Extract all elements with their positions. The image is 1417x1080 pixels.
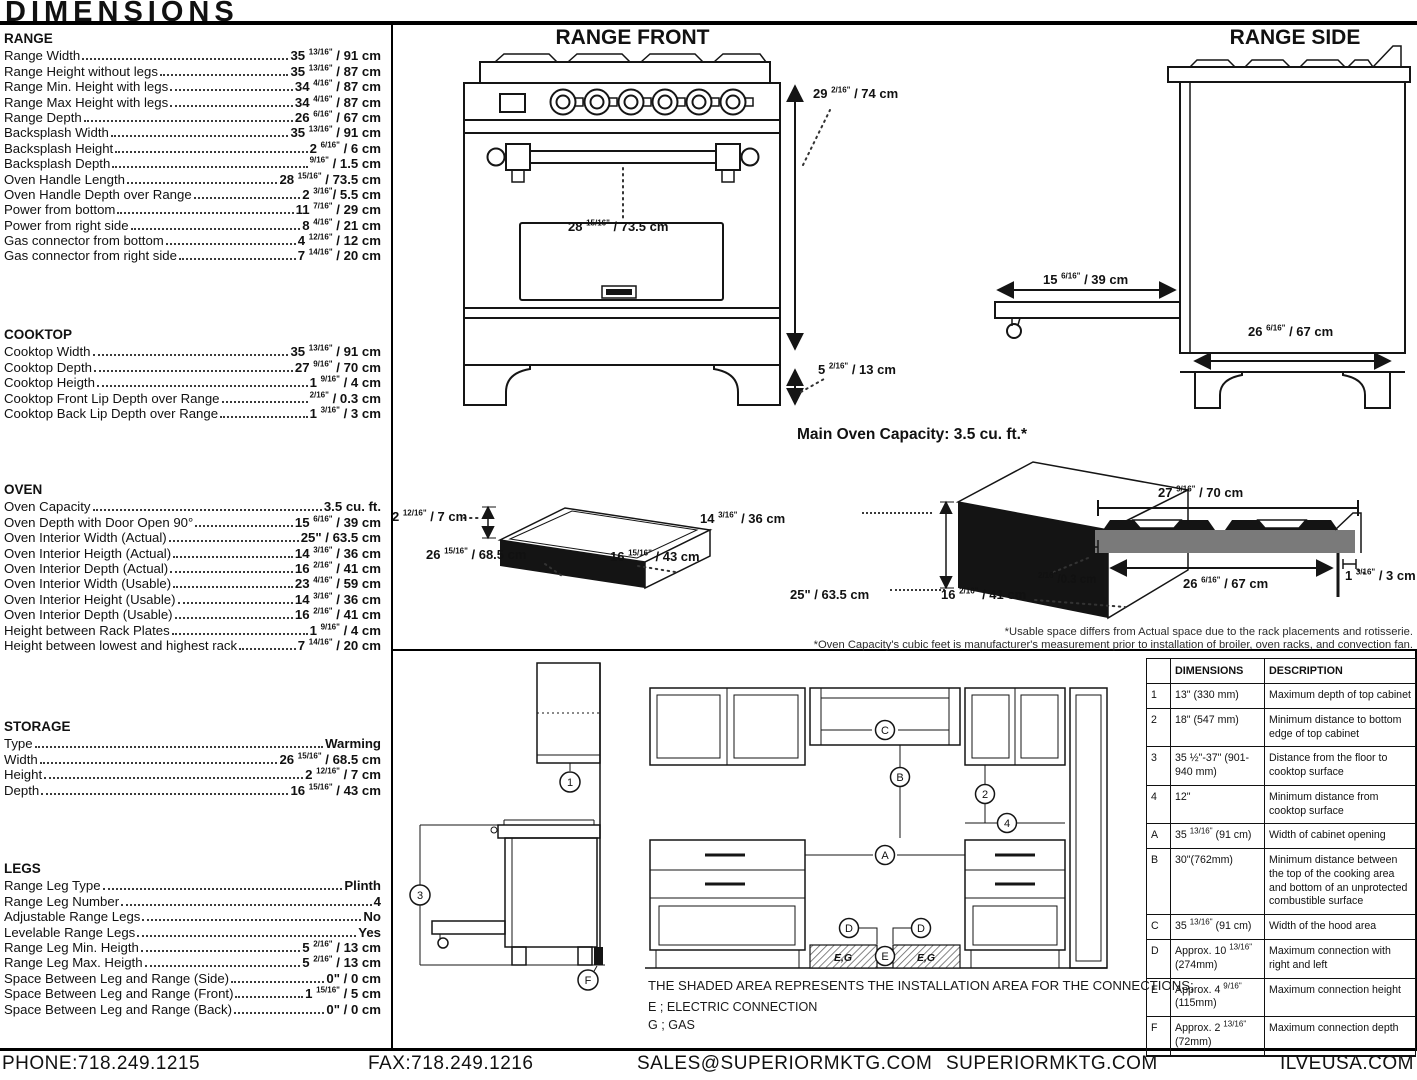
cooktop-top-bracket [1098,500,1358,516]
footer-phone: PHONE:718.249.1215 [2,1053,200,1075]
cooktop-left-label: 2/16"/0.3 cm [1038,574,1096,586]
spec-label: Range Leg Number [4,894,119,909]
spec-label: Height between lowest and highest rack [4,638,237,653]
spec-value: 2/16" / 0.3 cm [310,391,381,406]
spec-row: Backsplash Depth9/16" / 1.5 cm [4,156,381,171]
spec-label: Power from bottom [4,202,115,217]
spec-label: Range Max Height with legs [4,95,168,110]
spec-row: Range Height without legs35 13/16" / 87 … [4,63,381,78]
spec-row: Height between lowest and highest rack7 … [4,638,381,653]
leader-dots [93,354,289,356]
spec-label: Cooktop Front Lip Depth over Range [4,391,220,406]
svg-text:D: D [917,923,925,935]
side-cooktop [1168,46,1410,82]
spec-label: Backsplash Width [4,125,109,140]
side-backsplash [1373,46,1401,67]
install-dimension-table: DIMENSIONS DESCRIPTION 113" (330 mm)Maxi… [1146,658,1416,1057]
spec-value: 2 6/16" / 6 cm [310,141,381,156]
leader-dots [121,904,372,906]
svg-text:D: D [845,923,853,935]
spec-row: Range Leg Number4 [4,893,381,908]
leader-dots [137,935,356,937]
spec-label: Oven Interior Width (Usable) [4,576,171,591]
oven-w-leader [890,589,945,591]
side-open-drawer [995,302,1180,338]
leader-dots [170,89,293,91]
cooktop-grates [1103,520,1338,530]
spec-value: 16 2/16" / 41 cm [295,561,381,576]
tall-cabinet [1070,688,1107,968]
leader-dots [84,120,293,122]
table-row-id: A [1147,824,1171,849]
table-row-id: B [1147,849,1171,915]
spec-label: Cooktop Heigth [4,375,95,390]
spec-row: Oven Capacity3.5 cu. ft. [4,499,381,514]
leader-dots [112,166,307,168]
cooktop-top-label: 27 9/16" / 70 cm [1158,485,1243,500]
svg-text:1: 1 [567,777,573,789]
spec-label: Oven Handle Length [4,172,125,187]
leader-dots [82,58,288,60]
leader-dots [234,1012,324,1014]
leader-dots [173,556,293,558]
spec-label: Power from right side [4,218,129,233]
spec-value: 9/16" / 1.5 cm [310,156,381,171]
marker-c: C [876,721,895,740]
spec-value: Yes [358,925,381,940]
leader-dots [170,105,293,107]
spec-value: 16 15/16" / 43 cm [290,783,381,798]
spec-label: Depth [4,783,39,798]
spec-row: TypeWarming [4,736,381,751]
spec-section-legs: LEGSRange Leg TypePlinthRange Leg Number… [4,861,381,1017]
spec-label: Range Leg Min. Heigth [4,940,139,955]
spec-label: Height between Rack Plates [4,623,170,638]
spec-label: Oven Interior Height (Usable) [4,592,176,607]
spec-label: Space Between Leg and Range (Back) [4,1002,232,1017]
leader-dots [173,586,293,588]
spec-row: Oven Interior Width (Usable)23 4/16" / 5… [4,576,381,591]
table-row-id: 4 [1147,786,1171,825]
leader-dots [172,633,308,635]
marker-2: 2 [976,785,995,804]
connection-depth-block [594,947,603,965]
spec-label: Gas connector from bottom [4,233,164,248]
spec-row: Oven Handle Depth over Range2 3/16"/ 5.5… [4,187,381,202]
spec-label: Space Between Leg and Range (Front) [4,986,233,1001]
spec-row: Oven Interior Heigth (Actual)14 3/16" / … [4,545,381,560]
table-row-description: Width of cabinet opening [1265,824,1415,849]
spec-label: Oven Interior Heigth (Actual) [4,546,171,561]
leader-dots [175,617,293,619]
spec-row: Oven Interior Depth (Usable)16 2/16" / 4… [4,607,381,622]
front-oven-window [520,223,723,300]
leader-dots [103,888,343,890]
wall-cabinet [537,663,600,763]
spec-row: Gas connector from right side7 14/16" / … [4,248,381,263]
spec-row: Space Between Leg and Range (Front)1 15/… [4,986,381,1001]
table-row-description: Distance from the floor to cooktop surfa… [1265,747,1415,786]
spec-label: Height [4,767,42,782]
section-heading: OVEN [4,482,381,497]
front-legs [464,365,780,405]
spec-value: 14 3/16" / 36 cm [295,546,381,561]
section-heading: RANGE [4,31,381,46]
spec-label: Range Height without legs [4,64,158,79]
spec-label: Oven Interior Depth (Actual) [4,561,168,576]
spec-value: 26 6/16" / 67 cm [295,110,381,125]
marker3-bracket [420,825,510,965]
spec-label: Gas connector from right side [4,248,177,263]
oven-h-label: 14 3/16" / 36 cm [700,511,785,526]
cooktop-slab [1095,530,1355,553]
spec-label: Range Width [4,48,80,63]
spec-label: Oven Interior Width (Actual) [4,530,167,545]
svg-text:E: E [881,951,888,963]
spec-row: Cooktop Width35 13/16" / 91 cm [4,344,381,359]
oven-w-label: 25" / 63.5 cm [790,587,869,602]
legend-gas: G ; GAS [648,1018,695,1032]
spec-row: Height2 12/16" / 7 cm [4,767,381,782]
spec-row: Range Leg TypePlinth [4,878,381,893]
leader-dots [170,571,293,573]
spec-section-cooktop: COOKTOPCooktop Width35 13/16" / 91 cmCoo… [4,327,381,421]
section-heading: LEGS [4,861,381,876]
spec-label: Width [4,752,38,767]
knob-row [551,90,754,115]
base-left-cabinet [650,840,805,968]
spec-value: 4 12/16" / 12 cm [298,233,381,248]
spec-label: Type [4,736,33,751]
table-header-dimensions: DIMENSIONS [1171,659,1265,684]
spec-value: 1 9/16" / 4 cm [310,375,381,390]
table-row-description: Maximum connection depth [1265,1017,1415,1056]
front-logo-plate [602,286,636,298]
install-side-view: 1 3 F [398,660,643,1000]
spec-row: Range Width35 13/16" / 91 cm [4,48,381,63]
leader-dots [117,212,293,214]
table-row-id: 3 [1147,747,1171,786]
leader-dots [40,762,278,764]
spec-row: Backsplash Height2 6/16" / 6 cm [4,140,381,155]
spec-value: 7 14/16" / 20 cm [298,248,381,263]
spec-value: Plinth [344,878,381,893]
spec-row: Height between Rack Plates1 9/16" / 4 cm [4,622,381,637]
spec-value: 1 9/16" / 4 cm [310,623,381,638]
marker-a: A [876,846,895,865]
spec-label: Oven Handle Depth over Range [4,187,192,202]
spec-value: 2 12/16" / 7 cm [305,767,381,782]
front-handle-label: 28 15/16" / 73.5 cm [568,219,668,234]
table-row-dimensions: 13" (330 mm) [1171,684,1265,709]
spec-label: Range Depth [4,110,82,125]
leader-dots [178,602,293,604]
svg-text:4: 4 [1004,818,1010,830]
spec-value: 28 15/16" / 73.5 cm [279,172,381,187]
spec-label: Oven Interior Depth (Usable) [4,607,173,622]
spec-row: Range Depth26 6/16" / 67 cm [4,110,381,125]
table-row-id: D [1147,940,1171,979]
drawer-height-arrow [464,507,496,538]
table-row-dimensions: Approx. 4 9/16" (115mm) [1171,979,1265,1018]
spec-label: Space Between Leg and Range (Side) [4,971,229,986]
svg-text:C: C [881,725,889,737]
install-open-drawer [432,921,505,934]
side-body [1180,82,1405,353]
spec-row: Range Leg Min. Heigth5 2/16" / 13 cm [4,940,381,955]
markerD-left-leader [859,928,877,944]
spec-row: Space Between Leg and Range (Side)0" / 0… [4,970,381,985]
marker-e: E [876,947,895,966]
spec-row: Oven Interior Height (Usable)14 3/16" / … [4,591,381,606]
range-front-drawing [400,20,960,420]
spec-value: 34 4/16" / 87 cm [295,95,381,110]
table-row-description: Minimum distance to bottom edge of top c… [1265,709,1415,748]
spec-label: Backsplash Height [4,141,113,156]
spec-row: Width26 15/16" / 68.5 cm [4,751,381,766]
footnote-oven-capacity: *Oven Capacity's cubic feet is manufactu… [814,639,1413,651]
side-door-label: 15 6/16" / 39 cm [1043,272,1128,287]
table-row-dimensions: 18" (547 mm) [1171,709,1265,748]
leader-dots [235,996,303,998]
leader-dots [115,151,307,153]
leader-dots [195,525,293,527]
capacity-title: Main Oven Capacity: 3.5 cu. ft.* [797,426,1027,444]
table-row-description: Minimum distance between the top of the … [1265,849,1415,915]
table-row-dimensions: Approx. 2 13/16" (72mm) [1171,1017,1265,1056]
spec-row: Range Min. Height with legs34 4/16" / 87… [4,79,381,94]
caster-wheel [1007,324,1021,338]
spec-row: Power from bottom11 7/16" / 29 cm [4,202,381,217]
leader-dots [231,981,324,983]
leader-dots [35,746,323,748]
shaded-label-right: E,G [917,952,935,964]
front-cooktop-grates [480,54,770,83]
side-legs [1195,372,1390,408]
leader-dots [111,135,289,137]
marker-f: F [578,970,598,990]
leader-dots [220,416,308,418]
spec-value: 27 9/16" / 70 cm [295,360,381,375]
table-row-id: F [1147,1017,1171,1056]
spec-row: Range Leg Max. Heigth5 2/16" / 13 cm [4,955,381,970]
spec-value: 3.5 cu. ft. [324,499,381,514]
leader-dots [41,793,288,795]
front-height-arrow [795,86,830,349]
spec-value: 11 7/16" / 29 cm [296,202,381,217]
front-leg-label: 5 2/16" / 13 cm [818,362,896,377]
spec-label: Oven Capacity [4,499,91,514]
table-row-dimensions: 35 ½"-37" (901-940 mm) [1171,747,1265,786]
drawer-h-label: 2 12/16" / 7 cm [392,509,467,524]
oven-d-label: 16 2/16" / 41 cm [941,587,1026,602]
spec-label: Oven Depth with Door Open 90° [4,515,193,530]
spec-value: 23 4/16" / 59 cm [295,576,381,591]
table-row-dimensions: 35 13/16" (91 cm) [1171,915,1265,940]
svg-text:2: 2 [982,789,988,801]
display [500,94,525,112]
spec-value: 26 15/16" / 68.5 cm [279,752,381,767]
spec-row: Power from right side8 4/16" / 21 cm [4,217,381,232]
table-row-id: 2 [1147,709,1171,748]
cooktop-left-tick [1054,540,1098,572]
spec-value: 35 13/16" / 91 cm [290,344,381,359]
oven-height-arrow [940,502,954,588]
storage-drawer-drawing [390,480,730,610]
spec-row: Gas connector from bottom4 12/16" / 12 c… [4,233,381,248]
spec-value: 35 13/16" / 91 cm [290,48,381,63]
spec-value: 4 [374,894,381,909]
spec-label: Cooktop Depth [4,360,92,375]
footer-site2: ILVEUSA.COM [1280,1053,1414,1075]
spec-value: 1 3/16" / 3 cm [310,406,381,421]
svg-text:B: B [896,772,903,784]
spec-label: Cooktop Width [4,344,91,359]
spec-row: Cooktop Depth27 9/16" / 70 cm [4,359,381,374]
footer-site: SUPERIORMKTG.COM [946,1053,1158,1075]
spec-label: Adjustable Range Legs [4,909,140,924]
spec-label: Range Leg Max. Heigth [4,955,143,970]
footer-fax: FAX:718.249.1216 [368,1053,533,1075]
spec-value: 2 3/16"/ 5.5 cm [302,187,381,202]
install-caster [438,938,448,948]
spec-section-range: RANGERange Width35 13/16" / 91 cmRange H… [4,31,381,263]
cooktop-right-label: 1 3/16" / 3 cm [1345,568,1416,583]
leader-dots [131,228,301,230]
table-row-description: Width of the hood area [1265,915,1415,940]
spec-section-oven: OVENOven Capacity3.5 cu. ft.Oven Depth w… [4,482,381,653]
spec-label: Range Leg Type [4,878,101,893]
spec-value: 8 4/16" / 21 cm [302,218,381,233]
base-right-cabinet [965,840,1065,968]
table-row-id: C [1147,915,1171,940]
spec-row: Range Max Height with legs34 4/16" / 87 … [4,94,381,109]
spec-row: Oven Depth with Door Open 90°15 6/16" / … [4,514,381,529]
legend-electric: E ; ELECTRIC CONNECTION [648,1000,817,1014]
spec-value: 16 2/16" / 41 cm [295,607,381,622]
spec-row: Oven Interior Depth (Actual)16 2/16" / 4… [4,561,381,576]
marker-d-left: D [840,919,859,938]
leader-dots [166,243,296,245]
upper-left-cabinet [650,688,805,765]
oven-h-leader [862,512,932,514]
spec-value: 7 14/16" / 20 cm [298,638,381,653]
spec-value: 14 3/16" / 36 cm [295,592,381,607]
leader-dots [169,540,299,542]
spec-row: Adjustable Range LegsNo [4,909,381,924]
drawer-w-label: 26 15/16" / 68.5 cm [426,547,526,562]
leader-dots [44,777,303,779]
section-heading: STORAGE [4,719,381,734]
spec-row: Cooktop Front Lip Depth over Range2/16" … [4,390,381,405]
markerD-right-leader [893,928,911,944]
spec-value: 25" / 63.5 cm [301,530,381,545]
table-row-description: Maximum depth of top cabinet [1265,684,1415,709]
table-row-dimensions: Approx. 10 13/16" (274mm) [1171,940,1265,979]
spec-value: 0" / 0 cm [326,971,381,986]
spec-value: 35 13/16" / 91 cm [290,125,381,140]
table-row-dimensions: 30"(762mm) [1171,849,1265,915]
leader-dots [93,509,322,511]
spec-row: Oven Handle Length28 15/16" / 73.5 cm [4,171,381,186]
spec-value: 35 13/16" / 87 cm [290,64,381,79]
footer-email: SALES@SUPERIORMKTG.COM [637,1053,932,1075]
spec-value: 15 6/16" / 39 cm [295,515,381,530]
table-row-id: 1 [1147,684,1171,709]
spec-row: Cooktop Back Lip Depth over Range1 3/16"… [4,406,381,421]
spec-row: Backsplash Width35 13/16" / 91 cm [4,125,381,140]
leader-dots [194,197,301,199]
install-elevation: C B 2 4 A E,G E,G D D E [645,660,1115,1000]
install-range-side [432,820,605,965]
leader-dots [142,919,361,921]
spec-row: Cooktop Heigth1 9/16" / 4 cm [4,375,381,390]
front-control-panel [464,90,780,134]
leader-dots [94,370,293,372]
marker-1: 1 [560,772,580,792]
table-row-description: Minimum distance from cooktop surface [1265,786,1415,825]
spec-row: Space Between Leg and Range (Back)0" / 0… [4,1001,381,1016]
spec-row: Levelable Range LegsYes [4,924,381,939]
shaded-label-left: E,G [834,952,852,964]
table-header-description: DESCRIPTION [1265,659,1415,684]
footnote-usable-space: *Usable space differs from Actual space … [1005,626,1413,638]
spec-value: 0" / 0 cm [326,1002,381,1017]
spec-value: 1 15/16" / 5 cm [305,986,381,1001]
spec-value: 5 2/16" / 13 cm [302,940,381,955]
leader-dots [160,74,289,76]
leader-dots [141,950,300,952]
upper-right-cabinet [965,688,1065,765]
table-row-id: E [1147,979,1171,1018]
spec-value: Warming [325,736,381,751]
side-depth-label: 26 6/16" / 67 cm [1248,324,1333,339]
leader-dots [239,648,296,650]
marker-3: 3 [410,885,430,905]
drawer-d-label: 16 15/16" / 43 cm [610,549,700,564]
spec-section-storage: STORAGETypeWarmingWidth26 15/16" / 68.5 … [4,719,381,798]
leader-dots [179,258,296,260]
spec-row: Depth16 15/16" / 43 cm [4,782,381,797]
spec-label: Range Min. Height with legs [4,79,168,94]
spec-row: Oven Interior Width (Actual)25" / 63.5 c… [4,530,381,545]
front-height-label: 29 2/16" / 74 cm [813,86,898,101]
leader-dots [222,401,308,403]
table-corner-cell [1147,659,1171,684]
spec-label: Levelable Range Legs [4,925,135,940]
marker-d-right: D [912,919,931,938]
table-row-description: Maximum connection with right and left [1265,940,1415,979]
spec-label: Cooktop Back Lip Depth over Range [4,406,218,421]
leader-dots [145,965,301,967]
installation-note: THE SHADED AREA REPRESENTS THE INSTALLAT… [648,978,1194,993]
leader-dots [127,182,277,184]
spec-value: 5 2/16" / 13 cm [302,955,381,970]
leader-dots [97,385,308,387]
table-row-dimensions: 12" [1171,786,1265,825]
cooktop-bottom-label: 26 6/16" / 67 cm [1183,576,1268,591]
marker-4: 4 [998,814,1017,833]
section-heading: COOKTOP [4,327,381,342]
table-row-dimensions: 35 13/16" (91 cm) [1171,824,1265,849]
spec-value: No [363,909,381,924]
spec-value: 34 4/16" / 87 cm [295,79,381,94]
table-row-description: Maximum connection height [1265,979,1415,1018]
svg-text:F: F [585,975,592,987]
spec-label: Backsplash Depth [4,156,110,171]
range-side-drawing [990,20,1417,420]
svg-text:A: A [881,850,889,862]
